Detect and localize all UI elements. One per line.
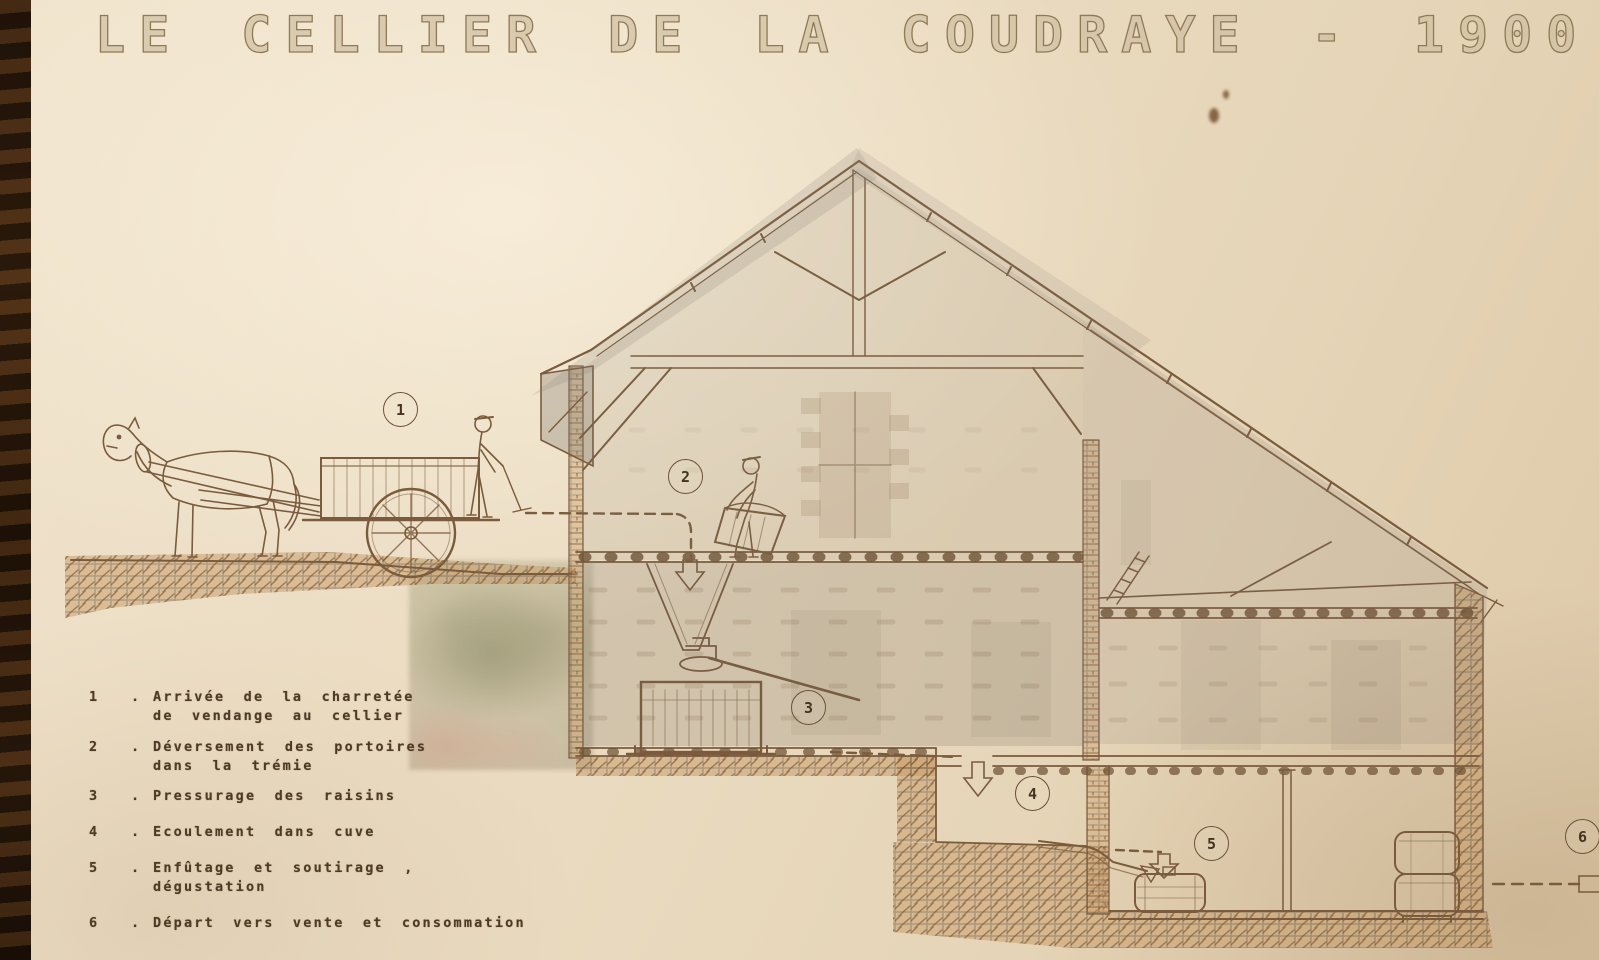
legend: 1 . Arrivée de la charretée de vendange … [89, 688, 539, 933]
legend-item-6-line1: Départ vers vente et consommation [153, 914, 526, 933]
step-marker-4: 4 [1015, 776, 1050, 811]
cask-icon [1135, 867, 1205, 912]
legend-item-2-line2: dans la trémie [153, 757, 427, 776]
legend-sep: . [131, 914, 153, 933]
step-marker-3-label: 3 [804, 699, 813, 717]
legend-item-2: 2 . Déversement des portoires dans la tr… [89, 738, 539, 776]
cave-left-wall [1087, 766, 1109, 914]
legend-item-4-num: 4 [89, 823, 131, 842]
legend-item-6-text: Départ vers vente et consommation [153, 914, 526, 933]
legend-item-6: 6 . Départ vers vente et consommation [89, 914, 539, 933]
legend-sep: . [131, 787, 153, 806]
step-marker-5-label: 5 [1207, 835, 1216, 853]
legend-item-2-num: 2 [89, 738, 131, 776]
legend-item-3: 3 . Pressurage des raisins [89, 787, 539, 806]
step-marker-2-label: 2 [681, 468, 690, 486]
poster-photo: LE CELLIER DE LA COUDRAYE - 1900 [0, 0, 1599, 960]
horse-icon [103, 418, 319, 557]
legend-item-4-line1: Ecoulement dans cuve [153, 823, 376, 842]
step-marker-6: 6 [1565, 819, 1599, 854]
legend-sep: . [131, 859, 153, 897]
background-wood-edge [0, 0, 31, 960]
step-marker-2: 2 [668, 459, 703, 494]
step-marker-4-label: 4 [1028, 785, 1037, 803]
legend-item-1-line2: de vendange au cellier [153, 707, 415, 726]
legend-item-2-text: Déversement des portoires dans la trémie [153, 738, 427, 776]
legend-item-3-text: Pressurage des raisins [153, 787, 396, 806]
down-arrow-icon [964, 762, 992, 796]
legend-item-5-num: 5 [89, 859, 131, 897]
legend-item-5: 5 . Enfûtage et soutirage , dégustation [89, 859, 539, 897]
step-marker-6-label: 6 [1578, 828, 1587, 846]
legend-item-1: 1 . Arrivée de la charretée de vendange … [89, 688, 539, 726]
step-marker-1: 1 [383, 392, 418, 427]
legend-item-3-num: 3 [89, 787, 131, 806]
poster-paper: LE CELLIER DE LA COUDRAYE - 1900 [31, 0, 1599, 960]
legend-item-1-num: 1 [89, 688, 131, 726]
legend-item-1-line1: Arrivée de la charretée [153, 688, 415, 707]
legend-item-5-text: Enfûtage et soutirage , dégustation [153, 859, 539, 897]
legend-sep: . [131, 688, 153, 726]
legend-item-3-line1: Pressurage des raisins [153, 787, 396, 806]
legend-item-1-text: Arrivée de la charretée de vendange au c… [153, 688, 415, 726]
photo-glare-overlay [531, 148, 1487, 746]
step-marker-3: 3 [791, 690, 826, 725]
right-arrow-icon [1579, 868, 1599, 900]
legend-sep: . [131, 738, 153, 776]
legend-item-4-text: Ecoulement dans cuve [153, 823, 376, 842]
step-marker-1-label: 1 [396, 401, 405, 419]
cave-post [1279, 770, 1295, 911]
step-marker-5: 5 [1194, 826, 1229, 861]
legend-item-6-num: 6 [89, 914, 131, 933]
stacked-barrels-icon [1395, 832, 1459, 922]
legend-item-2-line1: Déversement des portoires [153, 738, 427, 757]
legend-item-5-line1: Enfûtage et soutirage , dégustation [153, 859, 539, 897]
legend-item-4: 4 . Ecoulement dans cuve [89, 823, 539, 842]
legend-sep: . [131, 823, 153, 842]
